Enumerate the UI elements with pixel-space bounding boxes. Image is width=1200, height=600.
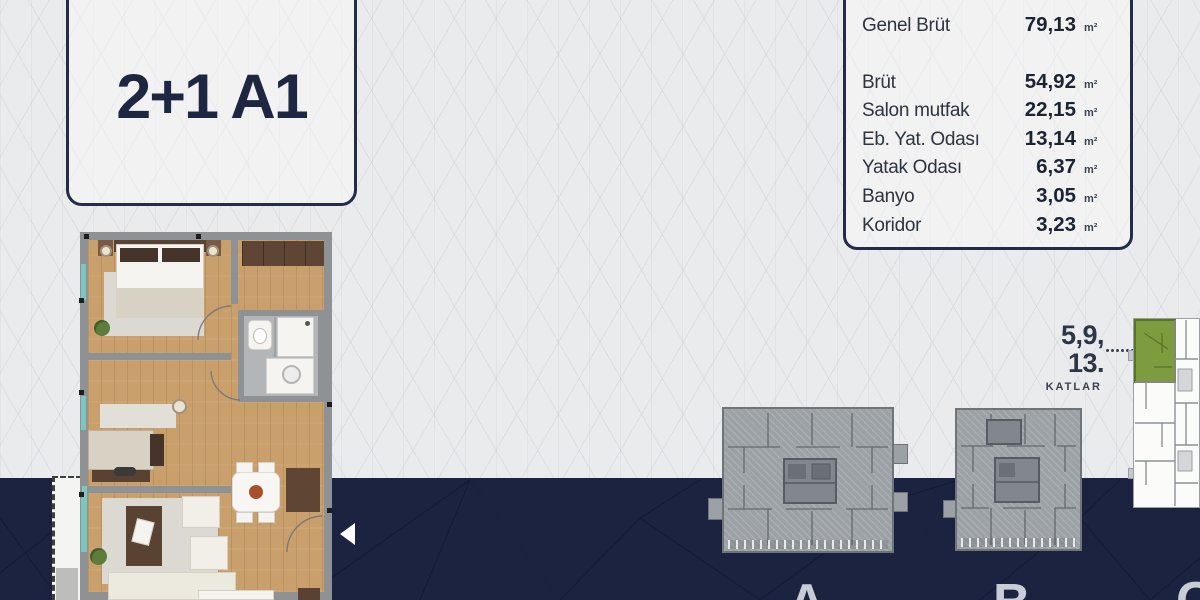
- balcony-step: [56, 568, 78, 600]
- door-mark: [84, 234, 89, 239]
- area-label: Brüt: [862, 72, 1008, 94]
- area-row: Yatak Odası 6,37 m²: [862, 155, 1114, 184]
- area-value: 13,14: [1008, 127, 1076, 151]
- door-mark: [327, 508, 332, 513]
- master-pillow-right: [162, 248, 200, 262]
- master-blanket: [116, 288, 204, 318]
- bed2-lamp-icon: [172, 399, 187, 414]
- area-row: Eb. Yat. Odası 13,14 m²: [862, 127, 1114, 156]
- row-spacer: [862, 42, 1114, 70]
- lamp-left-icon: [100, 245, 112, 257]
- sideboard: [286, 468, 320, 512]
- area-row: Salon mutfak 22,15 m²: [862, 98, 1114, 127]
- kitchen-counter: [298, 588, 320, 600]
- block-c-plan[interactable]: [1133, 318, 1200, 508]
- area-label: Eb. Yat. Odası: [862, 129, 1008, 151]
- table-centerpiece-icon: [249, 485, 263, 499]
- plant-living-icon: [90, 548, 107, 565]
- door-mark: [327, 402, 332, 407]
- shower-head-icon: [305, 321, 310, 326]
- area-label: Yatak Odası: [862, 157, 1008, 179]
- floorplan-page: 2+1 A1 Genel Brüt 79,13 m² Brüt 54,92 m²…: [0, 0, 1200, 600]
- area-unit: m²: [1076, 164, 1114, 176]
- area-unit: m²: [1076, 22, 1114, 34]
- block-a-tab: [892, 444, 908, 464]
- door-mark: [79, 298, 84, 303]
- floors-caption: KATLAR: [1046, 381, 1102, 393]
- highlighted-unit: [1135, 320, 1175, 382]
- area-unit: m²: [1076, 222, 1114, 234]
- block-a-tab: [892, 492, 908, 512]
- block-a-label[interactable]: A: [788, 577, 826, 600]
- area-value: 22,15: [1008, 98, 1076, 122]
- area-label: Salon mutfak: [862, 100, 1008, 122]
- area-row-total: Genel Brüt 79,13 m²: [862, 13, 1114, 42]
- bed2-rug: [100, 404, 176, 428]
- bath-divider: [274, 317, 276, 357]
- block-c-label[interactable]: C: [1176, 575, 1200, 600]
- block-b-plan[interactable]: [955, 408, 1082, 551]
- single-bed: [88, 430, 154, 470]
- block-a-plan[interactable]: [722, 407, 894, 553]
- area-label: Genel Brüt: [862, 15, 1008, 37]
- block-b-balconies: [961, 538, 1076, 547]
- door-mark: [79, 390, 84, 395]
- block-a-balconies: [728, 540, 888, 549]
- desk-chair: [114, 467, 136, 476]
- area-value: 79,13: [1008, 13, 1076, 37]
- console-table: [198, 590, 274, 600]
- unit-type-title: 2+1 A1: [116, 61, 307, 133]
- armchair-1: [182, 496, 220, 528]
- lamp-right-icon: [207, 245, 219, 257]
- area-unit: m²: [1076, 136, 1114, 148]
- prev-arrow-icon[interactable]: [340, 523, 355, 545]
- area-row: Banyo 3,05 m²: [862, 184, 1114, 213]
- area-value: 3,05: [1008, 184, 1076, 208]
- washbasin: [282, 365, 301, 384]
- wall-master-bed2: [88, 353, 231, 360]
- master-pillow-left: [120, 248, 158, 262]
- area-row: Koridor 3,23 m²: [862, 213, 1114, 242]
- entry-wardrobe: [242, 241, 324, 266]
- plant-master-icon: [94, 320, 110, 336]
- area-value: 54,92: [1008, 70, 1076, 94]
- area-row: Brüt 54,92 m²: [862, 70, 1114, 99]
- door-mark: [196, 234, 201, 239]
- unit-type-card: 2+1 A1: [66, 0, 357, 206]
- wall-bed2-living: [88, 486, 231, 493]
- block-b-label[interactable]: B: [993, 577, 1031, 600]
- area-unit: m²: [1076, 107, 1114, 119]
- window-master: [81, 264, 86, 300]
- armchair-2: [190, 536, 228, 570]
- area-label: Koridor: [862, 215, 1008, 237]
- area-label: Banyo: [862, 186, 1008, 208]
- area-unit: m²: [1076, 193, 1114, 205]
- area-table-card: Genel Brüt 79,13 m² Brüt 54,92 m² Salon …: [843, 0, 1133, 250]
- area-value: 3,23: [1008, 213, 1076, 237]
- single-bed-pillow: [150, 434, 164, 466]
- window-bed2: [81, 396, 86, 430]
- dining-chair-3: [236, 512, 253, 523]
- wall-hall: [231, 240, 238, 304]
- door-mark: [79, 492, 84, 497]
- area-unit: m²: [1076, 79, 1114, 91]
- area-value: 6,37: [1008, 155, 1076, 179]
- floors-line1: 5,9,: [1061, 322, 1104, 349]
- dining-chair-4: [258, 512, 275, 523]
- toilet-bowl: [253, 328, 267, 344]
- floors-line2: 13.: [1068, 350, 1104, 377]
